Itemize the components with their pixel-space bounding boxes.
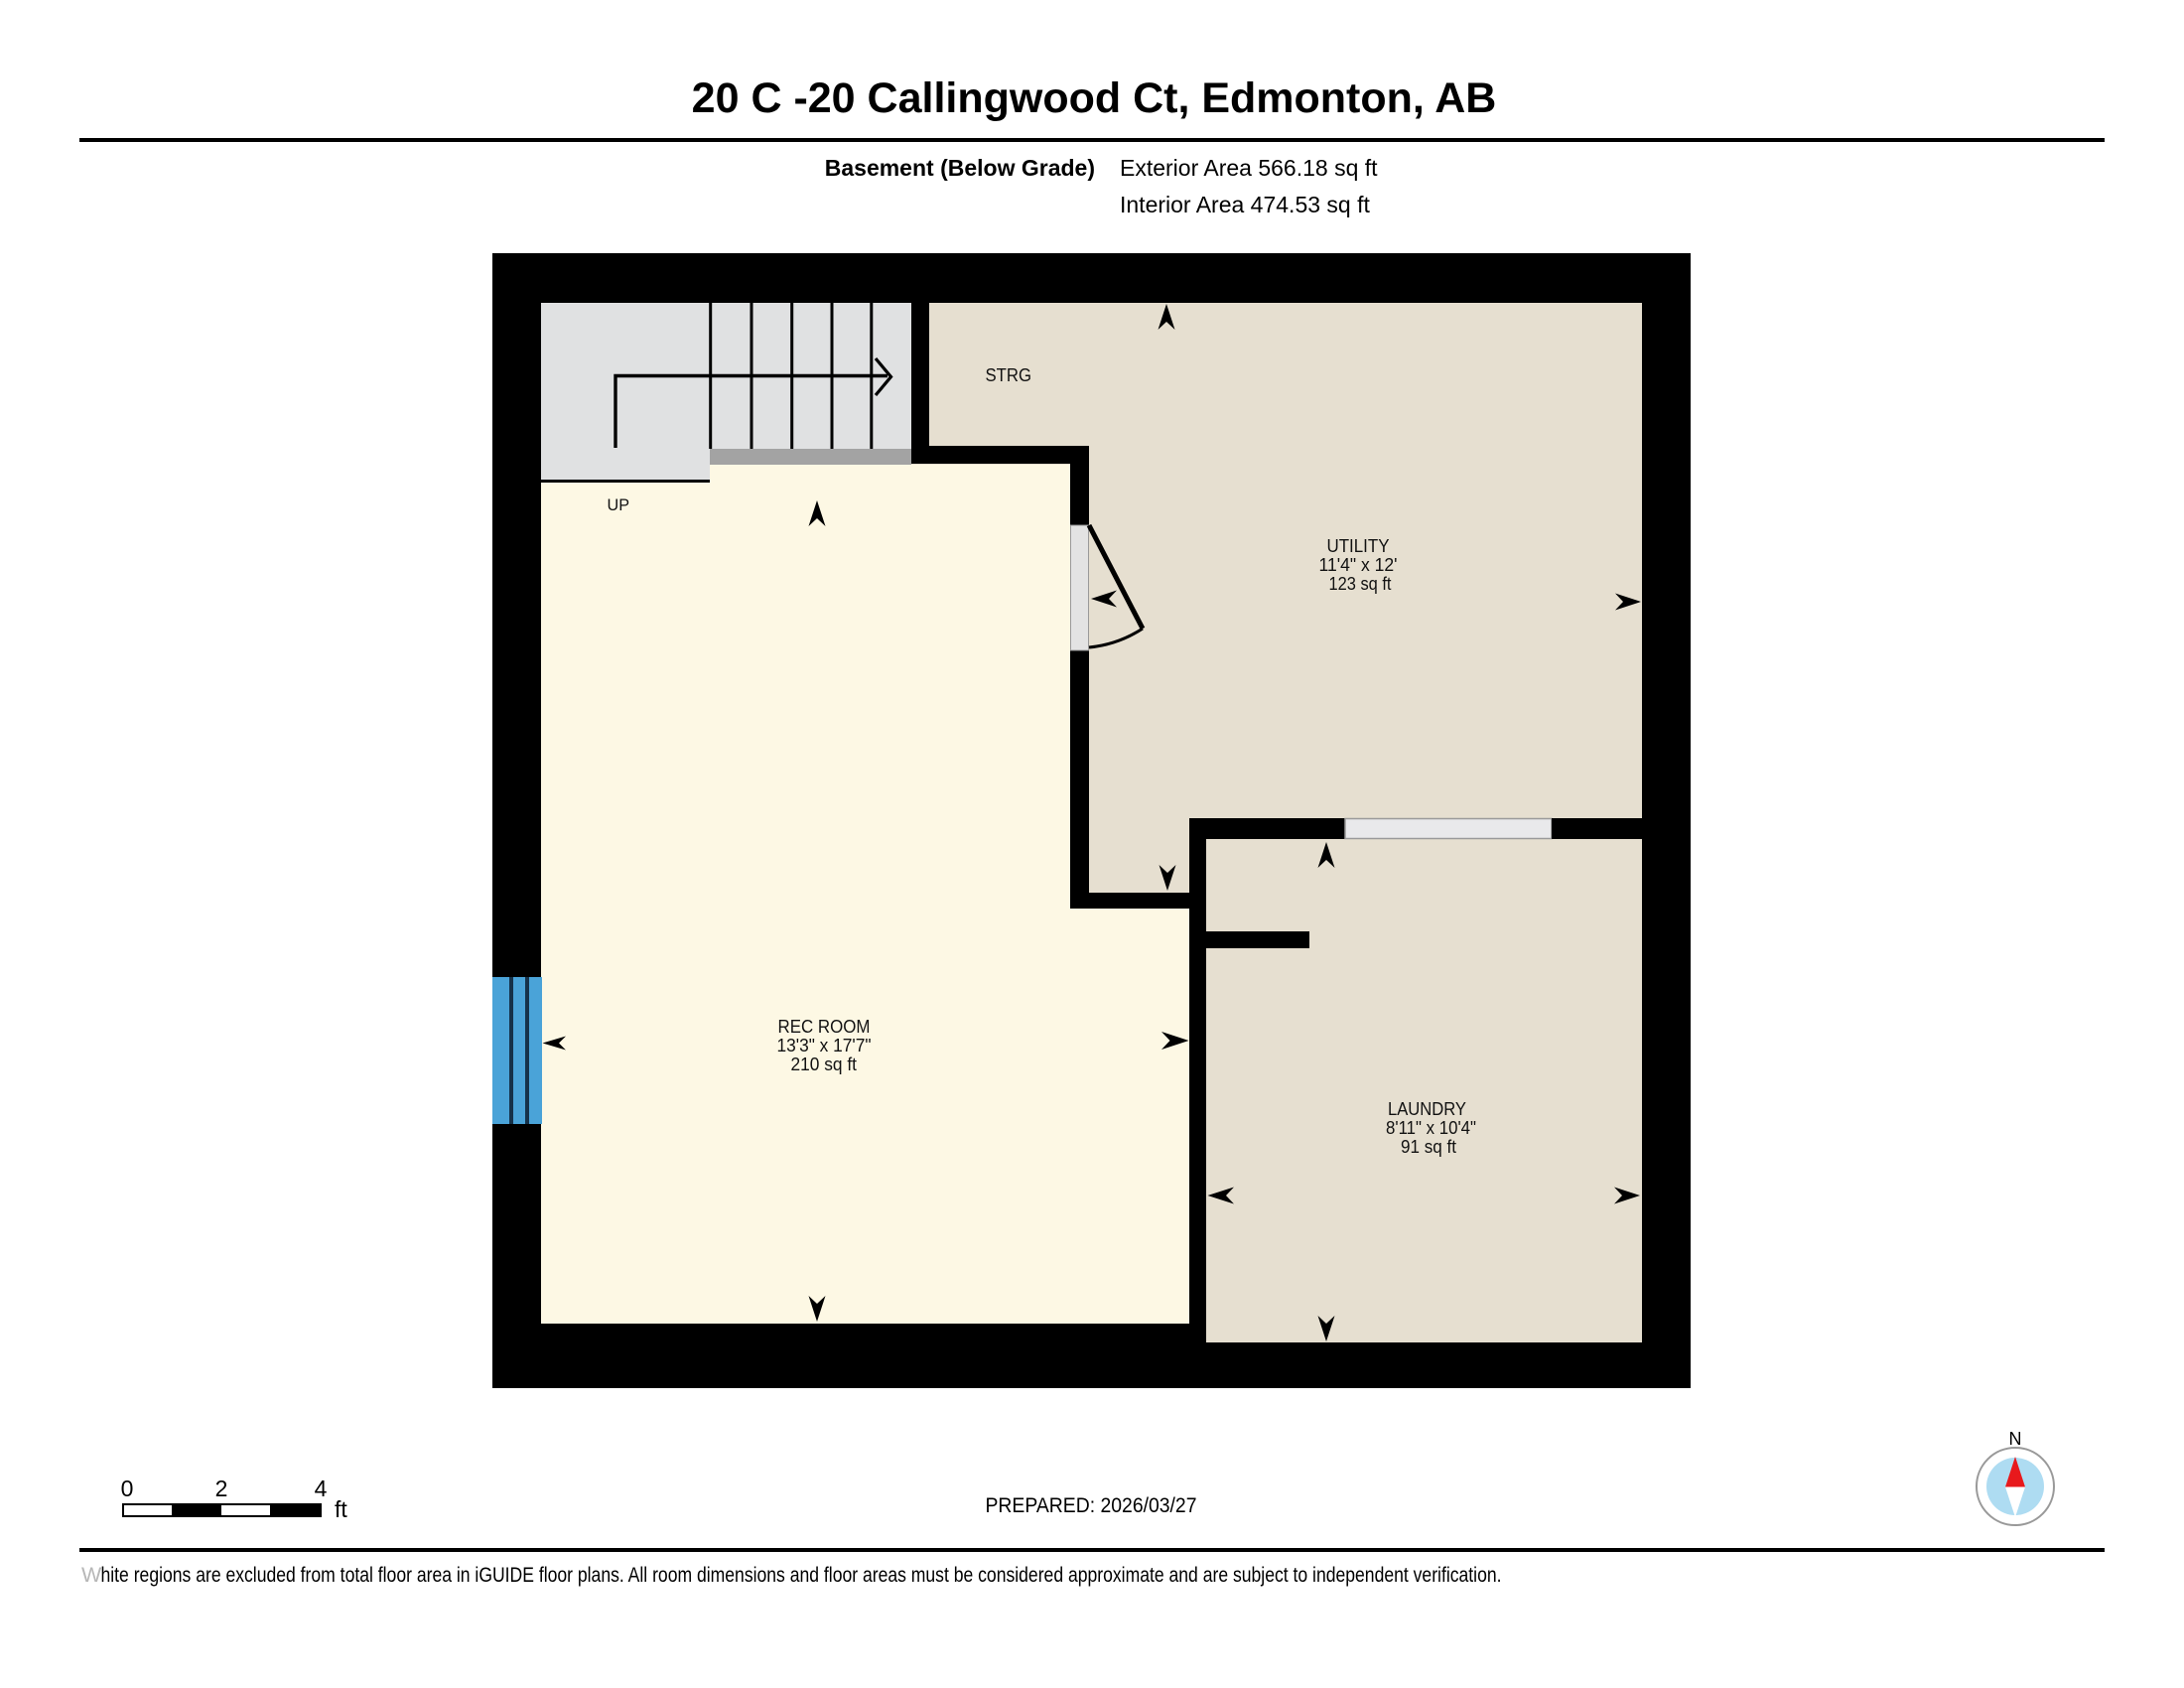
svg-text:8'11" x 10'4": 8'11" x 10'4" bbox=[1386, 1118, 1476, 1138]
svg-text:LAUNDRY: LAUNDRY bbox=[1388, 1099, 1466, 1119]
svg-text:UTILITY: UTILITY bbox=[1327, 536, 1390, 556]
svg-text:0: 0 bbox=[121, 1476, 134, 1501]
svg-text:2: 2 bbox=[215, 1476, 228, 1501]
svg-text:W: W bbox=[81, 1563, 102, 1587]
svg-text:STRG: STRG bbox=[986, 365, 1032, 385]
svg-text:N: N bbox=[2009, 1429, 2022, 1449]
svg-text:210 sq ft: 210 sq ft bbox=[791, 1055, 858, 1074]
svg-text:REC ROOM: REC ROOM bbox=[778, 1017, 871, 1037]
svg-text:Interior Area 474.53 sq ft: Interior Area 474.53 sq ft bbox=[1120, 192, 1370, 217]
svg-text:UP: UP bbox=[608, 495, 630, 514]
svg-text:13'3" x 17'7": 13'3" x 17'7" bbox=[777, 1036, 872, 1055]
svg-text:123 sq ft: 123 sq ft bbox=[1329, 574, 1392, 594]
svg-text:11'4" x 12': 11'4" x 12' bbox=[1319, 555, 1398, 575]
svg-text:4: 4 bbox=[315, 1476, 328, 1501]
svg-text:hite regions are excluded from: hite regions are excluded from total flo… bbox=[101, 1563, 1502, 1587]
svg-text:Basement (Below Grade): Basement (Below Grade) bbox=[825, 155, 1095, 181]
svg-text:PREPARED: 2026/03/27: PREPARED: 2026/03/27 bbox=[986, 1494, 1197, 1517]
svg-text:ft: ft bbox=[335, 1496, 347, 1522]
svg-text:20 C -20 Callingwood Ct, Edmon: 20 C -20 Callingwood Ct, Edmonton, AB bbox=[692, 74, 1497, 122]
svg-text:91 sq ft: 91 sq ft bbox=[1401, 1137, 1456, 1157]
svg-text:Exterior Area 566.18 sq ft: Exterior Area 566.18 sq ft bbox=[1120, 155, 1378, 181]
